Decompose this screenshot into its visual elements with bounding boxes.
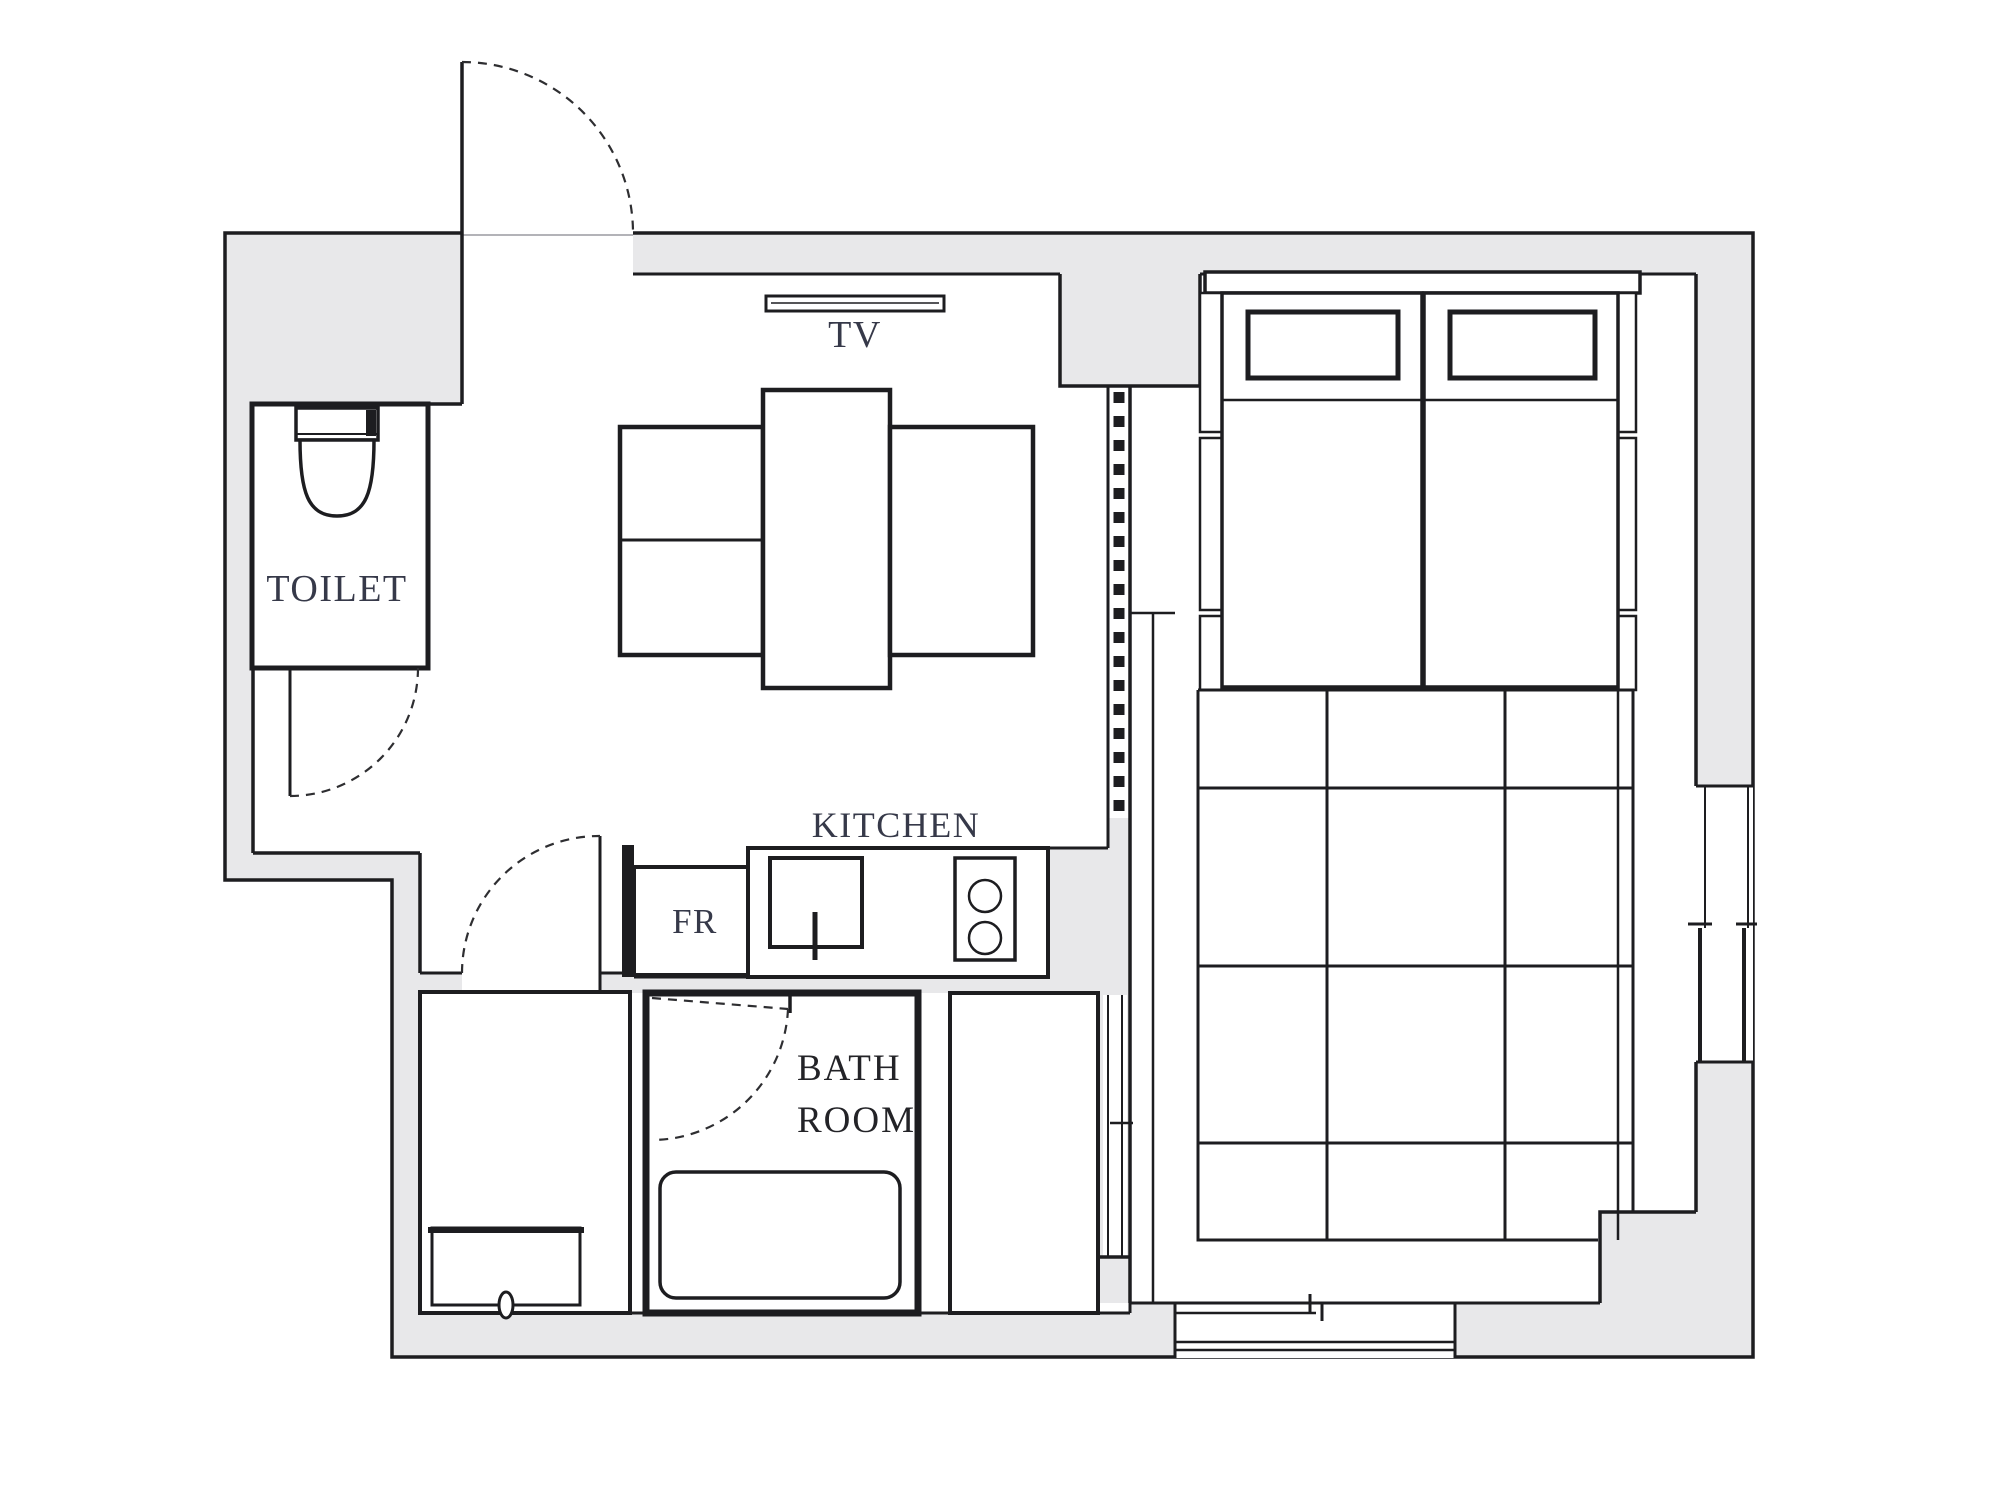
stove-burner-bottom [969, 922, 1001, 954]
pillow-right [1450, 312, 1595, 378]
kitchen-label: KITCHEN [812, 805, 980, 845]
bed-rail-segment [1618, 438, 1636, 610]
table-right-bench [890, 427, 1033, 655]
partition-door-opening [1103, 995, 1127, 1257]
bathroom-label-line1: BATH [797, 1048, 902, 1089]
closet-room [950, 993, 1098, 1313]
bed-headboard-bar [1205, 272, 1640, 293]
tv-unit [766, 296, 944, 311]
wall-top-band [633, 233, 1753, 274]
wall-bottom-left-band [392, 1313, 1175, 1358]
wall-track-connector [1108, 818, 1130, 848]
floor-step-edge [1131, 613, 1175, 1303]
floor-step-lines [1131, 613, 1175, 1303]
bathtub [660, 1172, 900, 1298]
wall-bottom-step [1130, 1303, 1175, 1358]
bed-rail-segment [1200, 438, 1222, 610]
wall-jut-bottom-right [1600, 1212, 1696, 1303]
entrance-door-arc [462, 62, 633, 233]
toilet-tank [296, 408, 378, 440]
washbasin-tap [499, 1292, 513, 1318]
wall-kitchen-right-block [1048, 848, 1130, 993]
pillow-left [1248, 312, 1398, 378]
fridge-label: FR [672, 902, 718, 941]
wall-bottom-right-band [1455, 1303, 1753, 1358]
bed-right-rail [1618, 293, 1636, 690]
tv-label: TV [828, 314, 882, 356]
bed-rail-segment [1200, 293, 1222, 432]
washroom-door [462, 836, 600, 973]
wall-washroom-top [420, 973, 462, 992]
tatami-grid [1198, 690, 1633, 1240]
toilet-door-arc [290, 668, 418, 796]
bed-left-rail [1200, 293, 1222, 690]
floor-plan-page: TV TOILET KITCHEN FR BATH ROOM [0, 0, 2000, 1500]
dining-table-group [620, 390, 1033, 688]
toilet-fixture [296, 408, 378, 516]
dining-table [763, 390, 890, 688]
wall-pillar [1060, 274, 1200, 386]
washroom-door-arc [462, 836, 600, 973]
entrance-door [462, 62, 633, 233]
bed-rail-segment [1200, 616, 1222, 690]
stove-burner-top [969, 880, 1001, 912]
bottom-wall-window [1175, 1294, 1455, 1358]
wall-left-lower [392, 880, 420, 1313]
toilet-label: TOILET [266, 568, 407, 610]
bed-rail-segment [1618, 616, 1636, 690]
right-wall-window [1688, 786, 1757, 1062]
bed-rail-segment [1618, 293, 1636, 432]
washbasin-group [428, 1228, 584, 1318]
toilet-door [290, 668, 418, 796]
toilet-bowl [300, 440, 374, 516]
wall-right-upper [1696, 274, 1753, 786]
bathroom-label-line2: ROOM [797, 1100, 916, 1141]
tatami-grid-rows [1198, 788, 1633, 1143]
toilet-flush-handle [366, 410, 376, 436]
beds-group [1200, 272, 1640, 690]
floor-plan-svg: TV TOILET KITCHEN FR BATH ROOM [0, 0, 2000, 1500]
